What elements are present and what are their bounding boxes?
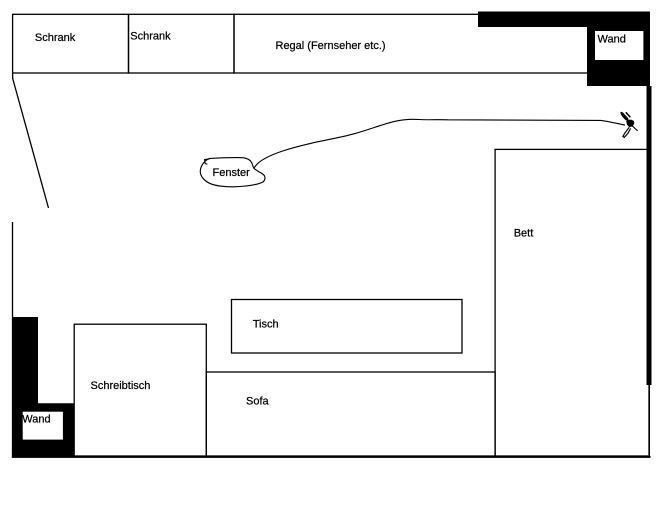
svg-text:Fenster: Fenster [213, 167, 251, 179]
svg-text:Regal (Fernseher etc.): Regal (Fernseher etc.) [276, 40, 386, 52]
svg-text:Wand: Wand [598, 34, 626, 46]
svg-text:Schrank: Schrank [35, 32, 76, 44]
svg-text:Schrank: Schrank [130, 31, 171, 43]
svg-text:Bett: Bett [514, 228, 534, 240]
svg-text:Tisch: Tisch [253, 319, 279, 331]
svg-text:Sofa: Sofa [246, 396, 270, 408]
svg-text:Wand: Wand [22, 413, 50, 425]
svg-text:Schreibtisch: Schreibtisch [91, 380, 151, 392]
